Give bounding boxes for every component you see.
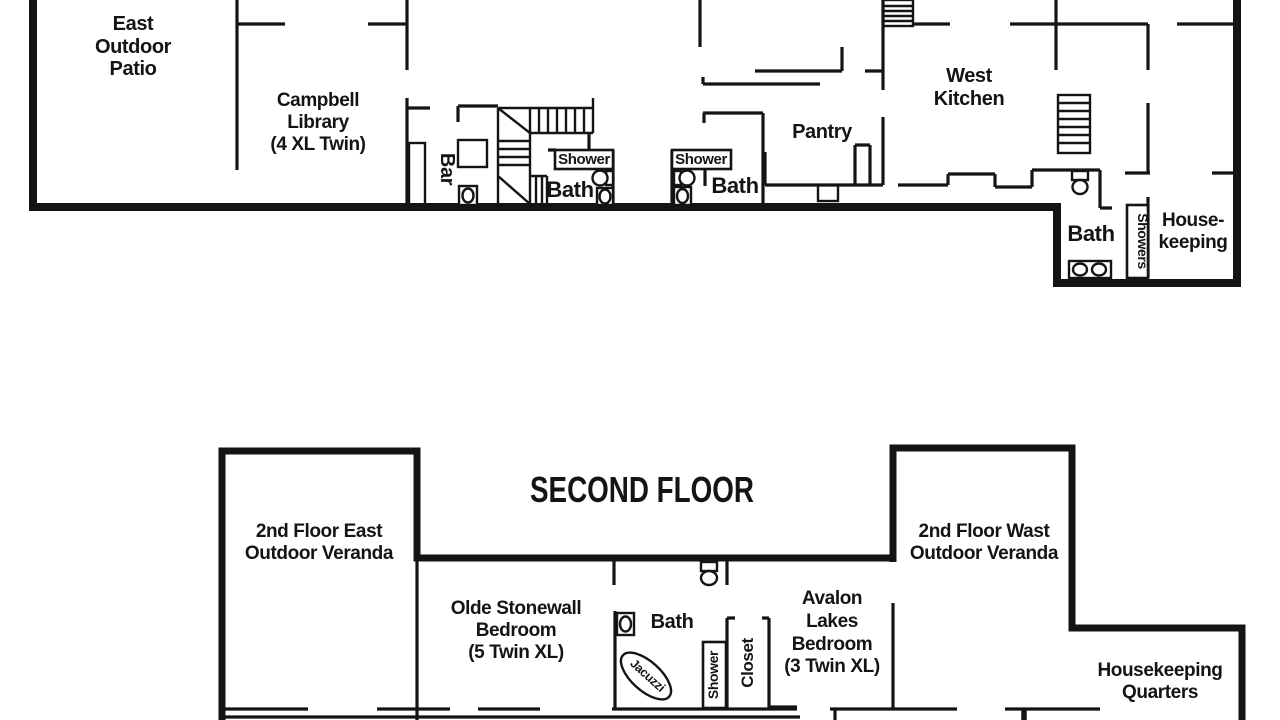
pantry-island (818, 185, 838, 201)
label-veranda-east-2: Outdoor Veranda (245, 543, 394, 564)
label-pantry: Pantry (792, 121, 853, 143)
bath-c-vanity-icon (1069, 261, 1111, 278)
label-patio-3: Patio (110, 58, 157, 80)
label-library-3: (4 XL Twin) (270, 134, 365, 155)
bar-cabinet (458, 140, 487, 167)
label-bath-a: Bath (546, 177, 593, 202)
label-patio-2: Outdoor (95, 36, 172, 58)
label-bath-b: Bath (711, 173, 758, 198)
second-floor: SECOND FLOOR 2nd Floor East Outdoor Vera… (222, 448, 1242, 720)
stairs-right-icon (1058, 95, 1090, 153)
bath-c-toilet-icon (1072, 171, 1088, 194)
veranda-east-walls (222, 451, 417, 720)
label-library-1: Campbell (277, 90, 359, 111)
label-veranda-west-2: Outdoor Veranda (910, 543, 1059, 564)
label-stonewall-2: Bedroom (476, 620, 557, 641)
bath-b-toilet-icon (674, 171, 695, 186)
first-floor: East Outdoor Patio Campbell Library (4 X… (33, 0, 1237, 283)
label-kitchen-1: West (946, 65, 993, 87)
label-bath-c: Bath (1067, 221, 1114, 246)
label-shower-second: Shower (705, 650, 721, 699)
label-hk-quarters-2: Quarters (1122, 682, 1198, 703)
label-stonewall-1: Olde Stonewall (451, 598, 582, 619)
second-floor-title: SECOND FLOOR (530, 469, 754, 510)
bar-sink-icon (459, 186, 477, 205)
floor-plan-page: East Outdoor Patio Campbell Library (4 X… (0, 0, 1280, 720)
floor-plan-drawing: East Outdoor Patio Campbell Library (4 X… (0, 0, 1280, 720)
label-showers: Showers (1135, 213, 1151, 269)
label-kitchen-2: Kitchen (934, 88, 1005, 110)
stairs-top-icon (883, 0, 913, 26)
label-library-2: Library (287, 112, 349, 133)
label-hk-quarters-1: Housekeeping (1097, 660, 1222, 681)
label-avalon-3: Bedroom (792, 634, 873, 655)
label-stonewall-3: (5 Twin XL) (468, 642, 564, 663)
label-bar: Bar (436, 153, 458, 186)
label-shower-b: Shower (675, 151, 727, 168)
bath-a-sink-icon (597, 188, 613, 205)
second-floor-toilet-icon (701, 562, 717, 585)
label-veranda-west-1: 2nd Floor Wast (919, 521, 1051, 542)
label-housekeeping-2: keeping (1159, 232, 1228, 253)
label-avalon-1: Avalon (802, 588, 862, 609)
second-floor-sink-icon (617, 613, 634, 635)
label-avalon-4: (3 Twin XL) (784, 656, 880, 677)
label-housekeeping-1: House- (1162, 210, 1224, 231)
label-shower-a: Shower (558, 151, 610, 168)
bath-b-sink-icon (674, 187, 691, 205)
label-patio-1: East (113, 13, 154, 35)
label-closet: Closet (738, 637, 757, 687)
bath-a-toilet-icon (593, 171, 614, 186)
label-avalon-2: Lakes (806, 611, 858, 632)
label-bath-second: Bath (651, 611, 694, 633)
label-veranda-east-1: 2nd Floor East (256, 521, 383, 542)
bar-counter (409, 143, 425, 205)
